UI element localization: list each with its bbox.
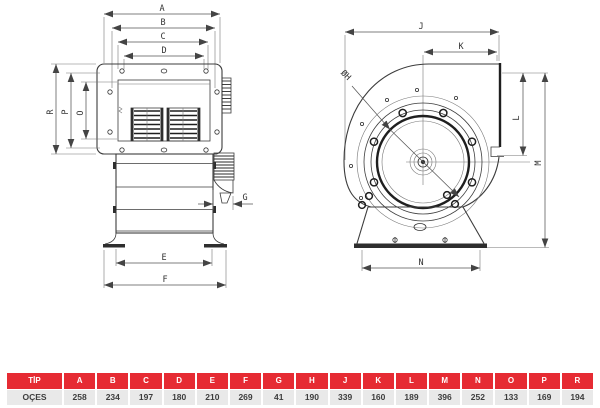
dim-l: L <box>497 73 548 156</box>
value-a: 258 <box>64 390 95 405</box>
dim-label-p: P <box>61 109 71 114</box>
dim-label-m: M <box>534 160 544 165</box>
col-header-g: G <box>263 373 294 389</box>
value-p: 169 <box>529 390 560 405</box>
scroll-housing-side <box>344 63 504 207</box>
casing-holes <box>349 88 457 199</box>
value-k: 160 <box>363 390 394 405</box>
dim-label-c: C <box>160 32 165 42</box>
dim-label-l: L <box>512 115 522 120</box>
col-header-p: P <box>529 373 560 389</box>
dim-label-g: G <box>242 193 247 203</box>
inlet-grille <box>119 107 200 141</box>
table-header-row: TİP A B C D E F G H J K L M N O P R <box>7 373 593 389</box>
value-g: 41 <box>263 390 294 405</box>
dim-label-d: D <box>161 46 166 56</box>
pedestal <box>354 192 487 248</box>
col-header-b: B <box>97 373 128 389</box>
dimensions-table: TİP A B C D E F G H J K L M N O P R OÇES… <box>7 373 593 405</box>
value-d: 180 <box>164 390 195 405</box>
dim-label-e: E <box>161 253 166 263</box>
dim-label-r: R <box>46 109 56 115</box>
col-header-f: F <box>230 373 261 389</box>
value-m: 396 <box>429 390 460 405</box>
value-j: 339 <box>330 390 361 405</box>
front-view: A B C D <box>46 4 253 288</box>
value-l: 189 <box>396 390 427 405</box>
col-header-j: J <box>330 373 361 389</box>
dim-m: M <box>484 73 549 248</box>
col-header-r: R <box>562 373 593 389</box>
value-h: 190 <box>296 390 327 405</box>
value-e: 210 <box>197 390 228 405</box>
dim-label-b: B <box>160 18 165 28</box>
col-header-l: L <box>396 373 427 389</box>
dim-h: ØH <box>338 68 459 197</box>
flange-holes <box>108 69 219 152</box>
col-header-a: A <box>64 373 95 389</box>
col-header-o: O <box>495 373 526 389</box>
col-header-c: C <box>130 373 161 389</box>
dim-label-n: N <box>418 258 423 268</box>
col-header-h: H <box>296 373 327 389</box>
col-header-k: K <box>363 373 394 389</box>
dim-d: D <box>124 46 204 69</box>
dim-k: K <box>424 42 497 61</box>
dim-label-f: F <box>162 275 167 285</box>
scroll-housing-front <box>113 154 216 233</box>
col-header-e: E <box>197 373 228 389</box>
feet-front <box>103 233 227 248</box>
value-c: 197 <box>130 390 161 405</box>
value-b: 234 <box>97 390 128 405</box>
dim-label-o: O <box>76 110 86 115</box>
dim-label-k: K <box>458 42 464 52</box>
value-r: 194 <box>562 390 593 405</box>
technical-drawing: A B C D <box>0 0 600 368</box>
value-f: 269 <box>230 390 261 405</box>
col-header-m: M <box>429 373 460 389</box>
dim-n: N <box>362 250 480 271</box>
motor-assembly <box>213 153 234 212</box>
motor-edge <box>222 78 231 113</box>
col-header-tip: TİP <box>7 373 62 389</box>
dim-label-a: A <box>159 4 164 14</box>
col-header-d: D <box>164 373 195 389</box>
col-header-n: N <box>462 373 493 389</box>
value-n: 252 <box>462 390 493 405</box>
dim-e: E <box>116 249 212 266</box>
dim-label-h: ØH <box>338 68 353 83</box>
side-view: J K <box>338 22 549 271</box>
value-o: 133 <box>495 390 526 405</box>
inlet-box <box>97 64 231 154</box>
table-data-row: OÇES 258 234 197 180 210 269 41 190 339 … <box>7 390 593 405</box>
dim-label-j: J <box>418 22 423 32</box>
row-label: OÇES <box>7 390 62 405</box>
catalog-page: { "drawing": { "labels": { "A": "A", "B"… <box>0 0 600 408</box>
